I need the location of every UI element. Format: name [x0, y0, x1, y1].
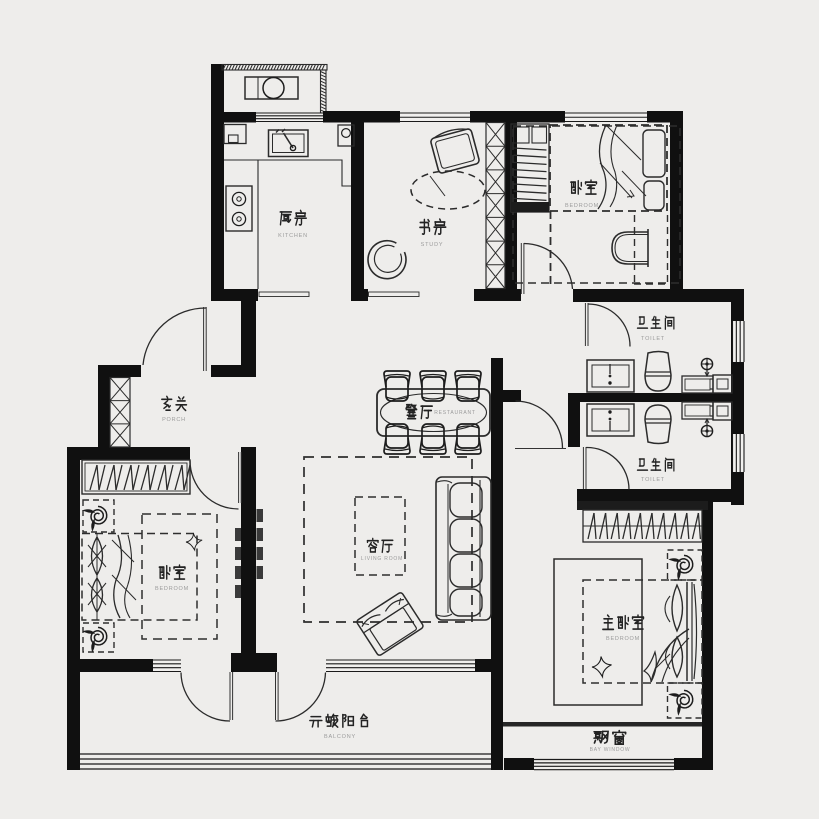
svg-text:BALCONY: BALCONY	[324, 734, 356, 740]
svg-text:BAY WINDOW: BAY WINDOW	[590, 747, 631, 753]
svg-text:BEDROOM: BEDROOM	[565, 203, 599, 209]
svg-text:BEDROOM: BEDROOM	[606, 636, 640, 642]
svg-text:LIVING ROOM: LIVING ROOM	[361, 556, 403, 562]
svg-text:TOILET: TOILET	[641, 477, 665, 483]
svg-text:BEDROOM: BEDROOM	[155, 586, 189, 592]
svg-text:KITCHEN: KITCHEN	[278, 233, 308, 239]
svg-text:RESTAURANT: RESTAURANT	[434, 410, 476, 416]
svg-text:PORCH: PORCH	[162, 417, 186, 423]
svg-text:STUDY: STUDY	[421, 242, 444, 248]
svg-text:TOILET: TOILET	[641, 336, 665, 342]
